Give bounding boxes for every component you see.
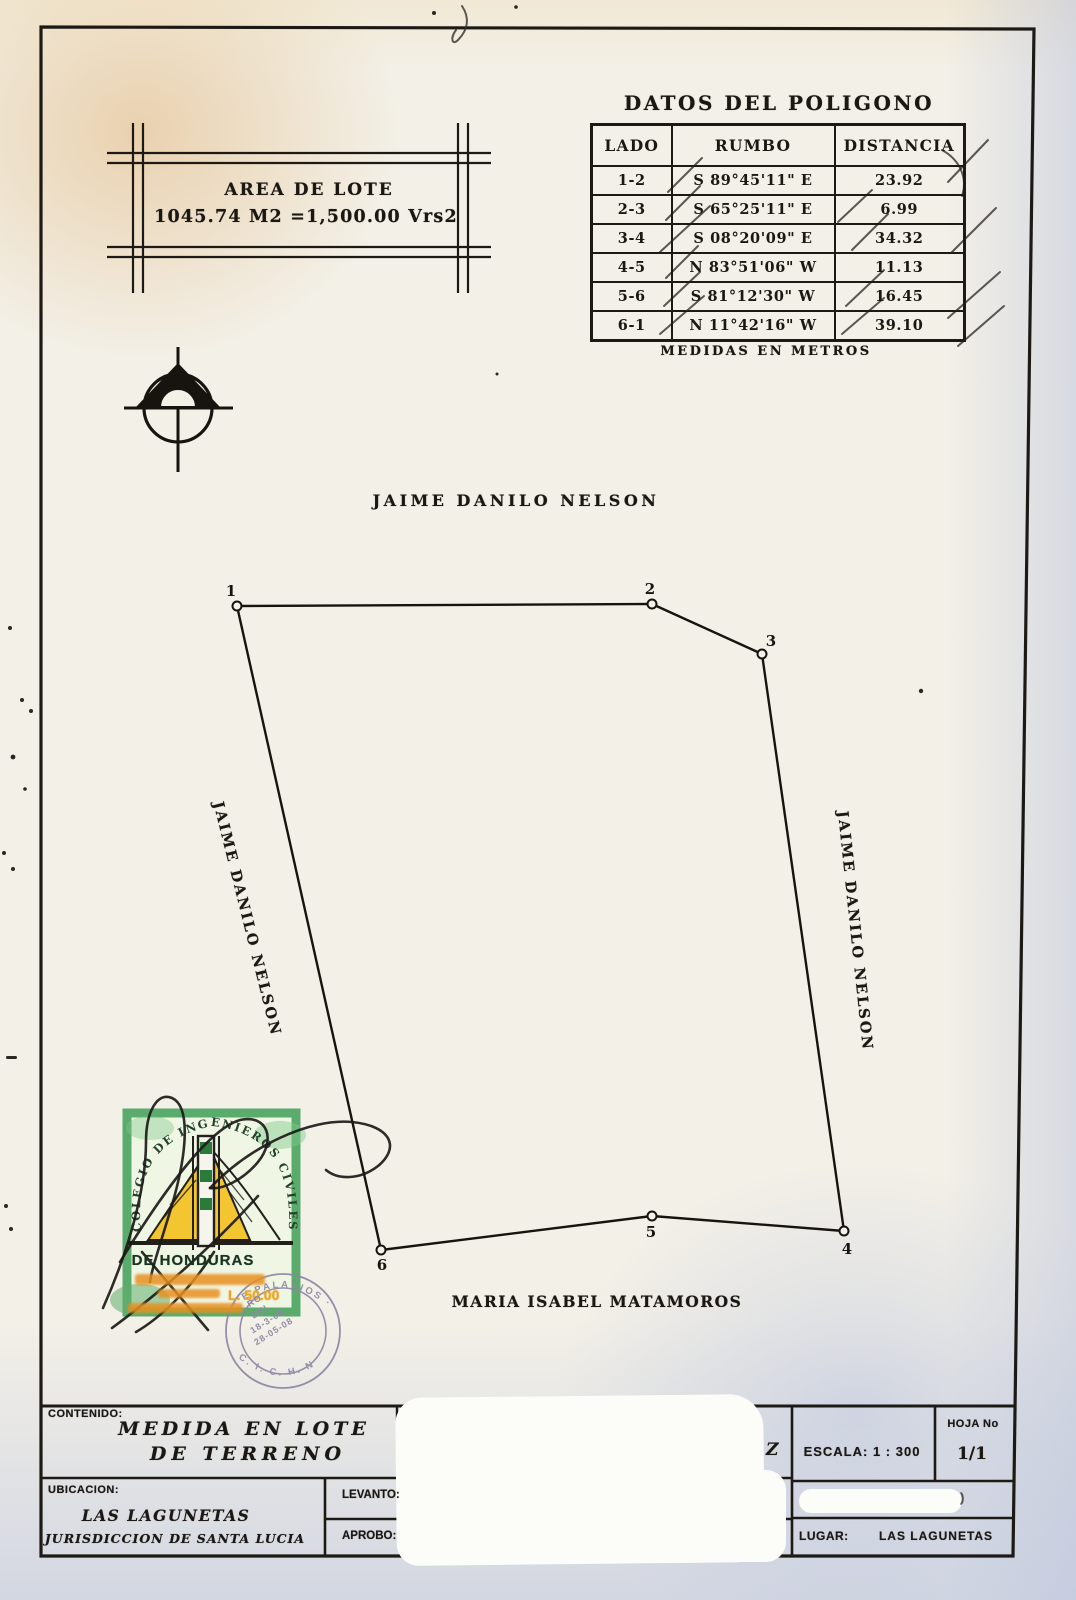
table-title: DATOS DEL POLIGONO — [624, 91, 934, 115]
vertex-2 — [648, 600, 657, 609]
cell-lado: 5-6 — [592, 282, 672, 311]
vertex-label-4: 4 — [842, 1240, 852, 1258]
escala-value: ESCALA: 1 : 300 — [804, 1444, 921, 1459]
vertex-6 — [377, 1246, 386, 1255]
vertex-4 — [840, 1227, 849, 1236]
cell-rumbo: S 89°45'11" E — [672, 166, 835, 195]
ubicacion-label: UBICACION: — [48, 1484, 119, 1496]
hoja-label: HOJA No — [947, 1418, 998, 1430]
table-row: 3-4S 08°20'09" E34.32 — [592, 224, 965, 253]
contenido-label: CONTENIDO: — [48, 1408, 123, 1420]
table-row: 5-6S 81°12'30" W16.45 — [592, 282, 965, 311]
cell-lado: 6-1 — [592, 311, 672, 341]
partial-redacted-letter: Z — [766, 1440, 778, 1460]
cell-rumbo: S 81°12'30" W — [672, 282, 835, 311]
vertex-label-5: 5 — [646, 1223, 656, 1241]
vertex-label-2: 2 — [645, 580, 655, 598]
polygon-data-table: LADO RUMBO DISTANCIA 1-2S 89°45'11" E23.… — [590, 123, 966, 342]
cell-rumbo: N 83°51'06" W — [672, 253, 835, 282]
parcel-polygon: 123456 — [226, 580, 852, 1274]
stamp-orange-bar-3 — [128, 1303, 243, 1313]
ubicacion-line2: JURISDICCION DE SANTA LUCIA — [45, 1531, 305, 1546]
table-row: 6-1N 11°42'16" W39.10 — [592, 311, 965, 341]
cell-rumbo: S 65°25'11" E — [672, 195, 835, 224]
area-box-line1: AREA DE LOTE — [224, 180, 393, 200]
vertex-label-1: 1 — [226, 582, 236, 600]
cell-lado: 4-5 — [592, 253, 672, 282]
cell-distancia: 23.92 — [835, 166, 965, 195]
cell-distancia: 39.10 — [835, 311, 965, 341]
adjoiner-top: JAIME DANILO NELSON — [373, 491, 660, 510]
cell-lado: 1-2 — [592, 166, 672, 195]
north-arrow-icon — [124, 347, 233, 472]
cell-distancia: 6.99 — [835, 195, 965, 224]
vertex-5 — [648, 1212, 657, 1221]
cell-distancia: 34.32 — [835, 224, 965, 253]
table-body: 1-2S 89°45'11" E23.922-3S 65°25'11" E6.9… — [592, 166, 965, 341]
area-box-line2: 1045.74 M2 =1,500.00 Vrs2 — [154, 207, 458, 227]
hoja-value: 1/1 — [957, 1444, 987, 1464]
contenido-line1: MEDIDA EN LOTE — [118, 1418, 370, 1440]
cell-rumbo: N 11°42'16" W — [672, 311, 835, 341]
lugar-label: LUGAR: — [799, 1529, 849, 1543]
levanto-label: LEVANTO: — [342, 1489, 400, 1501]
adjoiner-bottom: MARIA ISABEL MATAMOROS — [452, 1292, 743, 1311]
aprobo-label: APROBO: — [342, 1530, 396, 1542]
table-row: 1-2S 89°45'11" E23.92 — [592, 166, 965, 195]
table-row: 4-5N 83°51'06" W11.13 — [592, 253, 965, 282]
vertex-label-3: 3 — [766, 632, 776, 650]
scanned-survey-sheet: 123456 — [0, 0, 1076, 1600]
cell-rumbo: S 08°20'09" E — [672, 224, 835, 253]
vertex-label-6: 6 — [377, 1256, 387, 1274]
cell-lado: 3-4 — [592, 224, 672, 253]
vertex-1 — [233, 602, 242, 611]
ubicacion-line1: LAS LAGUNETAS — [82, 1506, 251, 1525]
header-rumbo: RUMBO — [672, 125, 835, 167]
redaction-blob-2 — [700, 1470, 786, 1562]
cell-lado: 2-3 — [592, 195, 672, 224]
contenido-line2: DE TERRENO — [150, 1443, 346, 1465]
redaction-pill — [799, 1489, 962, 1513]
vertex-3 — [758, 650, 767, 659]
header-lado: LADO — [592, 125, 672, 167]
stamp-orange-bar-2 — [158, 1289, 220, 1298]
table-row: 2-3S 65°25'11" E6.99 — [592, 195, 965, 224]
header-distancia: DISTANCIA — [835, 125, 965, 167]
lugar-value: LAS LAGUNETAS — [879, 1529, 993, 1543]
table-footnote: MEDIDAS EN METROS — [660, 344, 871, 359]
cell-distancia: 16.45 — [835, 282, 965, 311]
table-header-row: LADO RUMBO DISTANCIA — [592, 125, 965, 167]
stamp-org-name: DE HONDURAS — [132, 1252, 255, 1269]
stamp-orange-bar-1 — [135, 1274, 265, 1285]
redaction-end-mark: ) — [960, 1490, 964, 1505]
cell-distancia: 11.13 — [835, 253, 965, 282]
